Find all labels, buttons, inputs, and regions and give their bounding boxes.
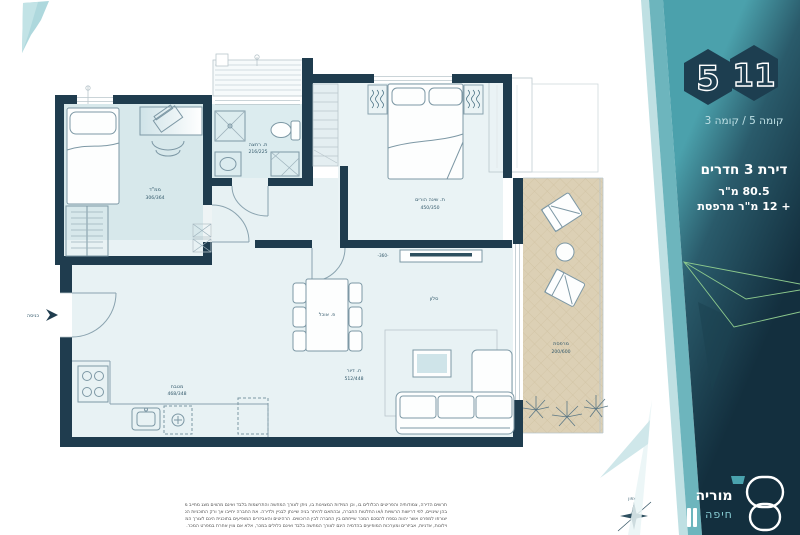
decor-top-left-shard: [22, 1, 49, 53]
balcony-label: מרפסת: [553, 341, 569, 347]
balcony-table: [556, 243, 574, 261]
apartment-area: 80.5 מ"ר: [694, 185, 794, 198]
dining-area: פ. אוכל: [293, 279, 362, 351]
floor-plan: מרפסת 200/600: [27, 54, 608, 447]
apartment-balcony-area: + 12 מ"ר מרפסת: [674, 200, 800, 213]
apartment-title: דירת 3 חדרים: [674, 162, 800, 178]
living-dims: 512/448: [344, 376, 363, 382]
mamad-label: ממ"ד: [149, 187, 161, 193]
parents-dims: 450/350: [420, 205, 439, 211]
entrance-arrow-icon: [46, 309, 58, 321]
plan-canvas: מרפסת 200/600: [0, 0, 800, 535]
logo-city: חיפה: [698, 508, 740, 521]
disclaimer: תרשים הדירה, צמודותיה והפריטים הכלולים ב…: [185, 502, 447, 530]
living-label: ח. דיור: [347, 368, 361, 374]
hex-unit-number: 11: [732, 58, 775, 94]
balcony-dims: 200/600: [551, 349, 570, 355]
coffee-table: [413, 350, 451, 377]
single-bed: [67, 108, 119, 204]
bathroom-dims: 216/225: [248, 149, 267, 155]
disclaimer-line: בהן שינויים, לפי דרישות הרשויות ו/או החל…: [185, 509, 447, 516]
balcony: מרפסת 200/600: [523, 178, 608, 433]
floor-line: קומה 5 / קומה 3: [682, 115, 800, 127]
salon-label: סלון: [430, 296, 439, 302]
hex-floor-number: 5: [696, 59, 720, 99]
logo-name: מוריה: [684, 488, 744, 504]
mamad-dims: 306/364: [145, 195, 164, 201]
page: מרפסת 200/600: [0, 0, 800, 535]
disclaimer-line: יצורפו למפרט אשר יהווה נספח להסכם המכר ש…: [185, 516, 447, 523]
laundry-screen: [213, 54, 303, 96]
disclaimer-line: תרשים הדירה, צמודותיה והפריטים הכלולים ב…: [185, 502, 447, 509]
side-panel: 5 11: [600, 0, 800, 535]
hall-dimension: -360-: [377, 253, 389, 258]
tv: [410, 253, 472, 257]
bathroom-label: ת. רחצה: [249, 142, 268, 148]
entrance-label: כניסה: [27, 313, 40, 319]
logo-roof-icon: [731, 476, 745, 484]
disclaimer-line: וילונות, אדניות, אביזרים ומערכות המופיעי…: [185, 523, 447, 530]
logo-bars-icon: [687, 508, 691, 527]
dining-label: פ. אוכל: [319, 312, 336, 318]
parents-label: ת. שינה הורים: [415, 197, 445, 203]
kitchen-dims: 468/348: [167, 391, 186, 397]
kitchen-label: מטבח: [171, 384, 184, 390]
